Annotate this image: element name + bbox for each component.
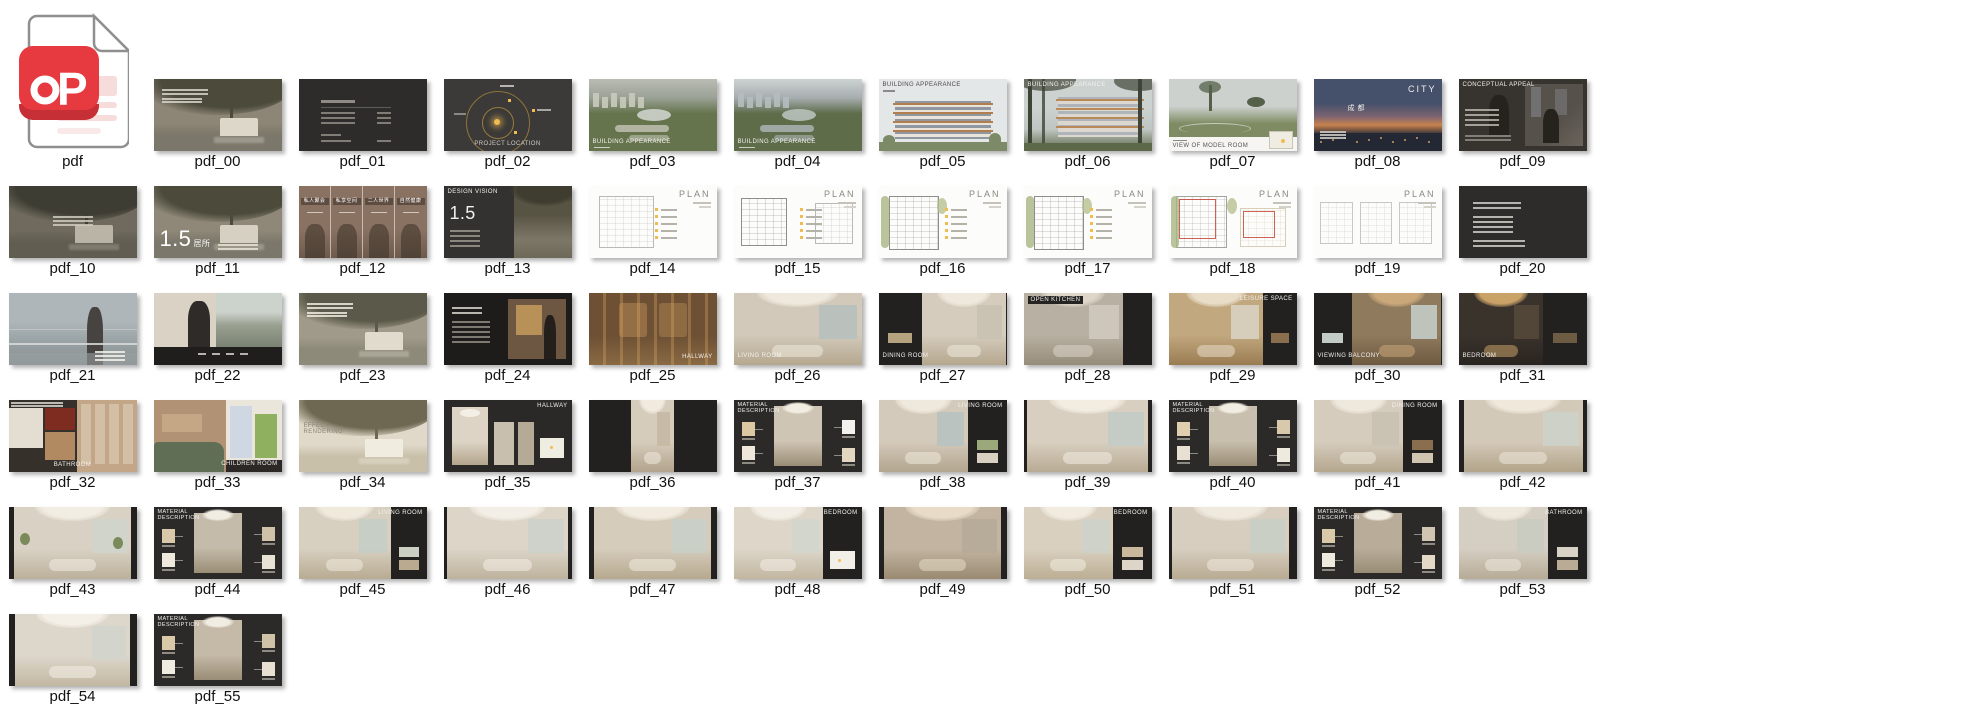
- thumbnail-pdf_23[interactable]: [299, 293, 427, 365]
- connector-line: [175, 667, 183, 668]
- text-line: [371, 212, 387, 213]
- thumbnail-row: pdf_54MATERIAL DESCRIPTIONpdf_55: [0, 599, 1595, 706]
- text-line: [1465, 119, 1499, 121]
- figure: [337, 224, 357, 258]
- legend-label: [661, 223, 677, 225]
- thumbnail-label[interactable]: pdf_15: [775, 260, 821, 278]
- center-photo: [1209, 406, 1257, 466]
- grid-cell: pdf_24: [435, 278, 580, 385]
- thumbnail-label[interactable]: pdf_50: [1065, 581, 1111, 599]
- grid-cell: 1.5居所pdf_11: [145, 171, 290, 278]
- thumbnail-pdf_19[interactable]: PLAN: [1314, 186, 1442, 258]
- thumbnail-pdf_05[interactable]: BUILDING APPEARANCE: [879, 79, 1007, 151]
- horizon: [9, 329, 137, 330]
- wardrobe-bay: [95, 404, 105, 464]
- thumbnail-pdf_46[interactable]: [444, 507, 572, 579]
- text-line: [1473, 245, 1525, 247]
- oculus: [460, 409, 480, 417]
- thumbnail-pdf_07[interactable]: VIEW OF MODEL ROOM: [1169, 79, 1297, 151]
- thumbnail-pdf_04[interactable]: BUILDING APPEARANCE: [734, 79, 862, 151]
- thumbnail-label[interactable]: pdf_32: [50, 474, 96, 492]
- swatch-label: [742, 462, 755, 464]
- toc-heading: [321, 100, 355, 103]
- text-line: [1320, 134, 1346, 136]
- thumbnail-pdf_49[interactable]: [879, 507, 1007, 579]
- thumbnail-label[interactable]: pdf_07: [1210, 153, 1256, 171]
- poi-dot: [514, 131, 517, 134]
- thumbnail-pdf_00[interactable]: [154, 79, 282, 151]
- landscape-strip: [1171, 196, 1179, 248]
- tower: [747, 97, 753, 108]
- panel-photo-chip: [1322, 333, 1344, 343]
- panel-photo-chip: [1122, 560, 1144, 570]
- thumbnail-pdf_03[interactable]: BUILDING APPEARANCE: [589, 79, 717, 151]
- legend-dot: [1090, 208, 1093, 211]
- thumbnail-pdf_27[interactable]: DINING ROOM: [879, 293, 1007, 365]
- text-line: [450, 235, 480, 237]
- people-column-label: 自然健康: [397, 198, 425, 205]
- thumbnail-label[interactable]: pdf_11: [195, 260, 240, 278]
- legend-dot: [800, 215, 803, 218]
- thumbnail-label[interactable]: pdf_43: [50, 581, 96, 599]
- thumbnail-label[interactable]: pdf_23: [340, 367, 386, 385]
- text-line: [321, 140, 351, 142]
- mini-plan-dot: [550, 446, 553, 449]
- map-label: [454, 113, 466, 115]
- sofa: [1499, 452, 1547, 464]
- text-line: [162, 93, 208, 95]
- thumbnail-label[interactable]: pdf_44: [195, 581, 241, 599]
- text-line: [53, 220, 93, 222]
- legend-dot: [655, 208, 658, 211]
- window: [977, 305, 1002, 339]
- landscape-blob: [1082, 198, 1092, 214]
- thumbnail-pdf_55[interactable]: MATERIAL DESCRIPTION: [154, 614, 282, 686]
- slide-caption: CONCEPTUAL APPEAL: [1463, 82, 1535, 88]
- thumbnail-pdf_21[interactable]: [9, 293, 137, 365]
- window: [1517, 519, 1544, 553]
- grid-cell: HALLWAYpdf_35: [435, 385, 580, 492]
- swatch-label: [262, 678, 275, 680]
- legend-label: [951, 223, 967, 225]
- thumbnail-pdf_48[interactable]: BEDROOM: [734, 507, 862, 579]
- thumbnail-pdf_54[interactable]: [9, 614, 137, 686]
- text-line: [377, 122, 391, 124]
- thumbnail-label[interactable]: pdf_09: [1500, 153, 1546, 171]
- legend-dot: [800, 222, 803, 225]
- legend-label: [806, 216, 822, 218]
- balcony-band: [893, 112, 993, 114]
- swatch-label: [742, 438, 755, 440]
- wardrobe-bay: [81, 404, 91, 464]
- slide-caption: BUILDING APPEARANCE: [1028, 82, 1106, 88]
- thumbnail-pdf_13[interactable]: DESIGN VISION1.5: [444, 186, 572, 258]
- slide-caption: BUILDING APPEARANCE: [738, 139, 816, 145]
- balcony-band: [893, 103, 993, 105]
- sofa: [1063, 452, 1111, 464]
- text-line: [1465, 114, 1499, 116]
- thumbnail-pdf_06[interactable]: BUILDING APPEARANCE: [1024, 79, 1152, 151]
- text-line: [321, 134, 341, 136]
- thumbnail-pdf_31[interactable]: BEDROOM: [1459, 293, 1587, 365]
- slide-caption: CITY: [1408, 85, 1437, 94]
- slide-caption: DINING ROOM: [1392, 403, 1438, 409]
- sub-caption: [739, 147, 755, 149]
- thumbnail-pdf_24[interactable]: [444, 293, 572, 365]
- thumbnail-pdf_26[interactable]: LIVING ROOM: [734, 293, 862, 365]
- thumbnail-label[interactable]: pdf_48: [775, 581, 821, 599]
- thumbnail-label[interactable]: pdf_21: [50, 367, 96, 385]
- legend-dot: [1090, 215, 1093, 218]
- text-line: [218, 248, 258, 250]
- window: [937, 412, 964, 446]
- swatch-label: [162, 545, 175, 547]
- thumbnail-pdf_11[interactable]: 1.5居所: [154, 186, 282, 258]
- sofa: [1485, 559, 1521, 571]
- text-line: [162, 196, 208, 198]
- swatch-label: [262, 650, 275, 652]
- wall-art: [516, 305, 542, 335]
- thumbnail-label[interactable]: pdf_20: [1500, 260, 1546, 278]
- sub-caption: [1424, 206, 1436, 208]
- thumbnail-label[interactable]: pdf_13: [485, 260, 531, 278]
- pavilion: [365, 332, 403, 350]
- text-line: [1465, 124, 1499, 126]
- figure: [544, 315, 556, 359]
- thumbnail-pdf_35[interactable]: HALLWAY: [444, 400, 572, 472]
- pavilion: [75, 225, 113, 243]
- sofa: [905, 452, 941, 464]
- thumbnail-label[interactable]: pdf_06: [1065, 153, 1111, 171]
- sofa: [919, 559, 966, 571]
- thumbnail-label[interactable]: pdf_51: [1210, 581, 1256, 599]
- thumbnail-pdf_12[interactable]: 私人聚会私享空间二人世界自然健康: [299, 186, 427, 258]
- legend-label: [806, 209, 822, 211]
- grid-cell: LIVING ROOMpdf_45: [290, 492, 435, 599]
- grid-cell: pdf_01: [290, 0, 435, 171]
- thumbnail-label[interactable]: pdf_33: [195, 474, 241, 492]
- file-icon-label[interactable]: pdf: [62, 153, 83, 171]
- floor-plan: [1399, 202, 1432, 244]
- panel-photo: [518, 422, 534, 465]
- thumbnail-label[interactable]: pdf_04: [775, 153, 821, 171]
- text-line: [212, 353, 220, 355]
- thumbnail-label[interactable]: pdf_42: [1500, 474, 1546, 492]
- thumbnail-label[interactable]: pdf_01: [340, 153, 386, 171]
- legend-label: [806, 237, 822, 239]
- legend-label: [951, 237, 967, 239]
- thumbnail-label[interactable]: pdf_00: [195, 153, 241, 171]
- slide-caption: MATERIAL DESCRIPTION: [1318, 510, 1360, 522]
- thumbnail-label[interactable]: pdf_34: [340, 474, 386, 492]
- legend-label: [1096, 216, 1112, 218]
- grid-cell: pdf_54: [0, 599, 145, 706]
- thumbnail-pdf_44[interactable]: MATERIAL DESCRIPTION: [154, 507, 282, 579]
- headboard: [162, 414, 202, 432]
- panel-photo-chip: [399, 547, 419, 557]
- grid-cell: CITY成都pdf_08: [1305, 0, 1450, 171]
- slide-caption: VIEWING BALCONY: [1318, 353, 1380, 359]
- thumbnail-label[interactable]: pdf_54: [50, 688, 96, 706]
- thumbnail-pdf_15[interactable]: PLAN: [734, 186, 862, 258]
- sub-caption: [883, 90, 895, 92]
- text-line: [1473, 207, 1521, 209]
- swatch-label: [162, 676, 175, 678]
- text-line: [240, 353, 248, 355]
- thumbnail-pdf_01[interactable]: [299, 79, 427, 151]
- thumbnail-label[interactable]: pdf_40: [1210, 474, 1256, 492]
- slide-caption: LEISURE SPACE: [1240, 296, 1292, 302]
- connector-line: [1190, 453, 1198, 454]
- thumbnail-pdf_30[interactable]: VIEWING BALCONY: [1314, 293, 1442, 365]
- text-line: [452, 341, 490, 343]
- text-line: [1465, 109, 1499, 111]
- thumbnail-pdf_14[interactable]: PLAN: [589, 186, 717, 258]
- floor-plan: [1360, 202, 1393, 244]
- thumbnail-label[interactable]: pdf_10: [50, 260, 96, 278]
- thumbnail-label[interactable]: pdf_53: [1500, 581, 1546, 599]
- thumbnail-label[interactable]: pdf_27: [920, 367, 966, 385]
- grid-cell: pdf_10: [0, 171, 145, 278]
- material-swatch: [1422, 555, 1435, 569]
- thumbnail-label[interactable]: pdf_12: [340, 260, 386, 278]
- thumbnail-pdf_18[interactable]: PLAN: [1169, 186, 1297, 258]
- grid-cell: DINING ROOMpdf_27: [870, 278, 1015, 385]
- material-swatch: [262, 555, 275, 569]
- floor-plan: [741, 198, 787, 246]
- thumbnail-label[interactable]: pdf_22: [195, 367, 241, 385]
- legend-dot: [800, 236, 803, 239]
- floor-plan: [599, 196, 655, 248]
- grid-cell: pdf_39: [1015, 385, 1160, 492]
- thumbnail-pdf_45[interactable]: LIVING ROOM: [299, 507, 427, 579]
- thumbnail-label[interactable]: pdf_52: [1355, 581, 1401, 599]
- pavilion: [220, 118, 258, 136]
- thumbnail-label[interactable]: pdf_29: [1210, 367, 1256, 385]
- connector-line: [1335, 536, 1343, 537]
- connector-line: [175, 643, 183, 644]
- text-line: [1473, 216, 1513, 218]
- thumbnail-label[interactable]: pdf_08: [1355, 153, 1401, 171]
- slide-caption: PLAN: [1114, 190, 1146, 199]
- thumbnail-label[interactable]: pdf_45: [340, 581, 386, 599]
- thumbnail-label[interactable]: pdf_03: [630, 153, 676, 171]
- thumbnail-pdf_20[interactable]: [1459, 186, 1587, 258]
- thumbnail-pdf_40[interactable]: MATERIAL DESCRIPTION: [1169, 400, 1297, 472]
- grid-cell: PLANpdf_15: [725, 171, 870, 278]
- legend-dot: [945, 222, 948, 225]
- swatch-label: [1422, 571, 1435, 573]
- panel-photo-chip: [977, 453, 999, 463]
- project-dot: [494, 119, 500, 125]
- window: [1231, 305, 1259, 339]
- thumbnail-label[interactable]: pdf_16: [920, 260, 966, 278]
- material-swatch: [262, 527, 275, 541]
- plant: [20, 533, 30, 545]
- thumbnail-pdf_38[interactable]: LIVING ROOM: [879, 400, 1007, 472]
- text-line: [452, 331, 490, 333]
- thumbnail-label[interactable]: pdf_24: [485, 367, 531, 385]
- swatch-label: [1422, 543, 1435, 545]
- tree-trunk: [1028, 79, 1032, 151]
- slide-caption: CHILDREN ROOM: [221, 461, 277, 467]
- window: [1372, 412, 1399, 446]
- grid-cell: CONCEPTUAL APPEALpdf_09: [1450, 0, 1595, 171]
- thumbnail-label[interactable]: pdf_17: [1065, 260, 1111, 278]
- text-line: [307, 315, 347, 317]
- connector-line: [834, 427, 842, 428]
- thumbnail-pdf_42[interactable]: [1459, 400, 1587, 472]
- slide-caption: HALLWAY: [682, 354, 712, 360]
- slide-caption: BEDROOM: [1463, 353, 1497, 359]
- thumbnail-label[interactable]: pdf_39: [1065, 474, 1111, 492]
- thumbnail-label[interactable]: pdf_02: [485, 153, 531, 171]
- center-photo: [1354, 513, 1402, 573]
- legend-dot: [655, 229, 658, 232]
- text-line: [162, 208, 202, 210]
- sofa: [1379, 345, 1415, 357]
- thumbnail-pdf_02[interactable]: PROJECT LOCATION: [444, 79, 572, 151]
- balcony-band: [893, 121, 993, 123]
- legend-label: [661, 216, 677, 218]
- poi-dot: [532, 109, 535, 112]
- sub-caption: [1173, 140, 1187, 142]
- grid-cell: VIEWING BALCONYpdf_30: [1305, 278, 1450, 385]
- thumbnail-label[interactable]: pdf_37: [775, 474, 821, 492]
- thumbnail-label[interactable]: pdf_05: [920, 153, 966, 171]
- thumbnail-pdf_29[interactable]: LEISURE SPACE: [1169, 293, 1297, 365]
- thumbnail-pdf_34[interactable]: EFFECT RENDERING: [299, 400, 427, 472]
- thumbnail-pdf_10[interactable]: [9, 186, 137, 258]
- city-light: [1416, 137, 1418, 139]
- slide-caption: BUILDING APPEARANCE: [593, 139, 671, 145]
- thumbnail-label[interactable]: pdf_35: [485, 474, 531, 492]
- grid-cell: 私人聚会私享空间二人世界自然健康pdf_12: [290, 171, 435, 278]
- text-line: [1473, 240, 1525, 242]
- thumbnail-label[interactable]: pdf_19: [1355, 260, 1401, 278]
- thumbnail-pdf_41[interactable]: DINING ROOM: [1314, 400, 1442, 472]
- legend-label: [661, 230, 677, 232]
- suit-figure: [188, 301, 210, 347]
- grid-cell: PLANpdf_16: [870, 171, 1015, 278]
- thumbnail-label[interactable]: pdf_31: [1500, 367, 1546, 385]
- text-line: [307, 212, 323, 213]
- thumbnail-pdf_08[interactable]: CITY成都: [1314, 79, 1442, 151]
- thumbnail-label[interactable]: pdf_41: [1355, 474, 1401, 492]
- thumbnail-label[interactable]: pdf_25: [630, 367, 676, 385]
- thumbnail-pdf_28[interactable]: OPEN KITCHEN: [1024, 293, 1152, 365]
- landscape-blob: [1227, 198, 1237, 214]
- text-line: [1473, 221, 1513, 223]
- panel-photo-chip: [1553, 333, 1577, 343]
- shrub: [1247, 97, 1265, 107]
- thumbnail-label[interactable]: pdf_46: [485, 581, 531, 599]
- grid-cell: BATHROOMpdf_32: [0, 385, 145, 492]
- grid-cell: VIEW OF MODEL ROOMpdf_07: [1160, 0, 1305, 171]
- thumbnail-label[interactable]: pdf_28: [1065, 367, 1111, 385]
- thumbnail-pdf_36[interactable]: [589, 400, 717, 472]
- thumbnail-pdf_52[interactable]: MATERIAL DESCRIPTION: [1314, 507, 1442, 579]
- thumbnail-pdf_32[interactable]: BATHROOM: [9, 400, 137, 472]
- slide-caption: BEDROOM: [824, 510, 858, 516]
- thumbnail-label[interactable]: pdf_55: [195, 688, 241, 706]
- thumbnail-label[interactable]: pdf_14: [630, 260, 676, 278]
- water-reflection: [359, 458, 409, 464]
- text-line: [452, 307, 482, 309]
- thumbnail-pdf_51[interactable]: [1169, 507, 1297, 579]
- thumbnail-pdf_43[interactable]: [9, 507, 137, 579]
- grid-cell: MATERIAL DESCRIPTIONpdf_44: [145, 492, 290, 599]
- low-rise-band: [760, 125, 814, 132]
- legend-label: [1096, 209, 1112, 211]
- thumbnail-pdf_37[interactable]: MATERIAL DESCRIPTION: [734, 400, 862, 472]
- slide-caption: BATHROOM: [1545, 510, 1582, 516]
- thumbnail-pdf_25[interactable]: HALLWAY: [589, 293, 717, 365]
- window: [359, 519, 387, 553]
- swatch-label: [162, 569, 175, 571]
- text-line: [307, 312, 347, 314]
- thumbnail-pdf_39[interactable]: [1024, 400, 1152, 472]
- text-line: [450, 230, 480, 232]
- thumbnail-pdf_47[interactable]: [589, 507, 717, 579]
- thumbnail-label[interactable]: pdf_47: [630, 581, 676, 599]
- thumbnail-label[interactable]: pdf_38: [920, 474, 966, 492]
- thumbnail-pdf_09[interactable]: CONCEPTUAL APPEAL: [1459, 79, 1587, 151]
- thumbnail-label[interactable]: pdf_49: [920, 581, 966, 599]
- thumbnail-pdf_22[interactable]: [154, 293, 282, 365]
- city-land: [1314, 133, 1442, 151]
- slide-bg: [299, 79, 427, 151]
- grid-cell: HALLWAYpdf_25: [580, 278, 725, 385]
- thumbnail-pdf_53[interactable]: BATHROOM: [1459, 507, 1587, 579]
- text-line: [198, 353, 206, 355]
- thumbnail-label[interactable]: pdf_30: [1355, 367, 1401, 385]
- city-light: [1380, 137, 1382, 139]
- balcony-band: [1056, 99, 1144, 101]
- thumbnail-label[interactable]: pdf_26: [775, 367, 821, 385]
- swatch-label: [1277, 436, 1290, 438]
- pdf-file-icon[interactable]: P: [17, 12, 129, 151]
- center-photo: [774, 406, 822, 466]
- thumbnail-pdf_50[interactable]: BEDROOM: [1024, 507, 1152, 579]
- material-swatch: [842, 448, 855, 462]
- building-elevation: [895, 101, 991, 139]
- floor-plan: [1320, 202, 1353, 244]
- text-line: [321, 112, 355, 114]
- material-swatch: [1177, 422, 1190, 436]
- material-swatch: [1177, 446, 1190, 460]
- thumbnail-pdf_33[interactable]: CHILDREN ROOM: [154, 400, 282, 472]
- panel-photo: [494, 422, 514, 465]
- legend-dot: [800, 208, 803, 211]
- window: [1543, 412, 1579, 446]
- grid-cell: BUILDING APPEARANCEpdf_06: [1015, 0, 1160, 171]
- thumbnail-label[interactable]: pdf_36: [630, 474, 676, 492]
- material-swatch: [262, 662, 275, 676]
- city-light: [1356, 141, 1358, 143]
- thumbnail-pdf_17[interactable]: PLAN: [1024, 186, 1152, 258]
- thumbnail-label[interactable]: pdf_18: [1210, 260, 1256, 278]
- grid-cell: PLANpdf_17: [1015, 171, 1160, 278]
- window: [92, 519, 127, 553]
- pdf-logo-letter: P: [57, 63, 88, 115]
- lake: [782, 109, 816, 121]
- thumbnail-pdf_16[interactable]: PLAN: [879, 186, 1007, 258]
- plan-red-outline: [1243, 211, 1275, 238]
- panel-photo-chip: [1412, 453, 1434, 463]
- balcony-band: [1056, 108, 1144, 110]
- swatch-label: [262, 543, 275, 545]
